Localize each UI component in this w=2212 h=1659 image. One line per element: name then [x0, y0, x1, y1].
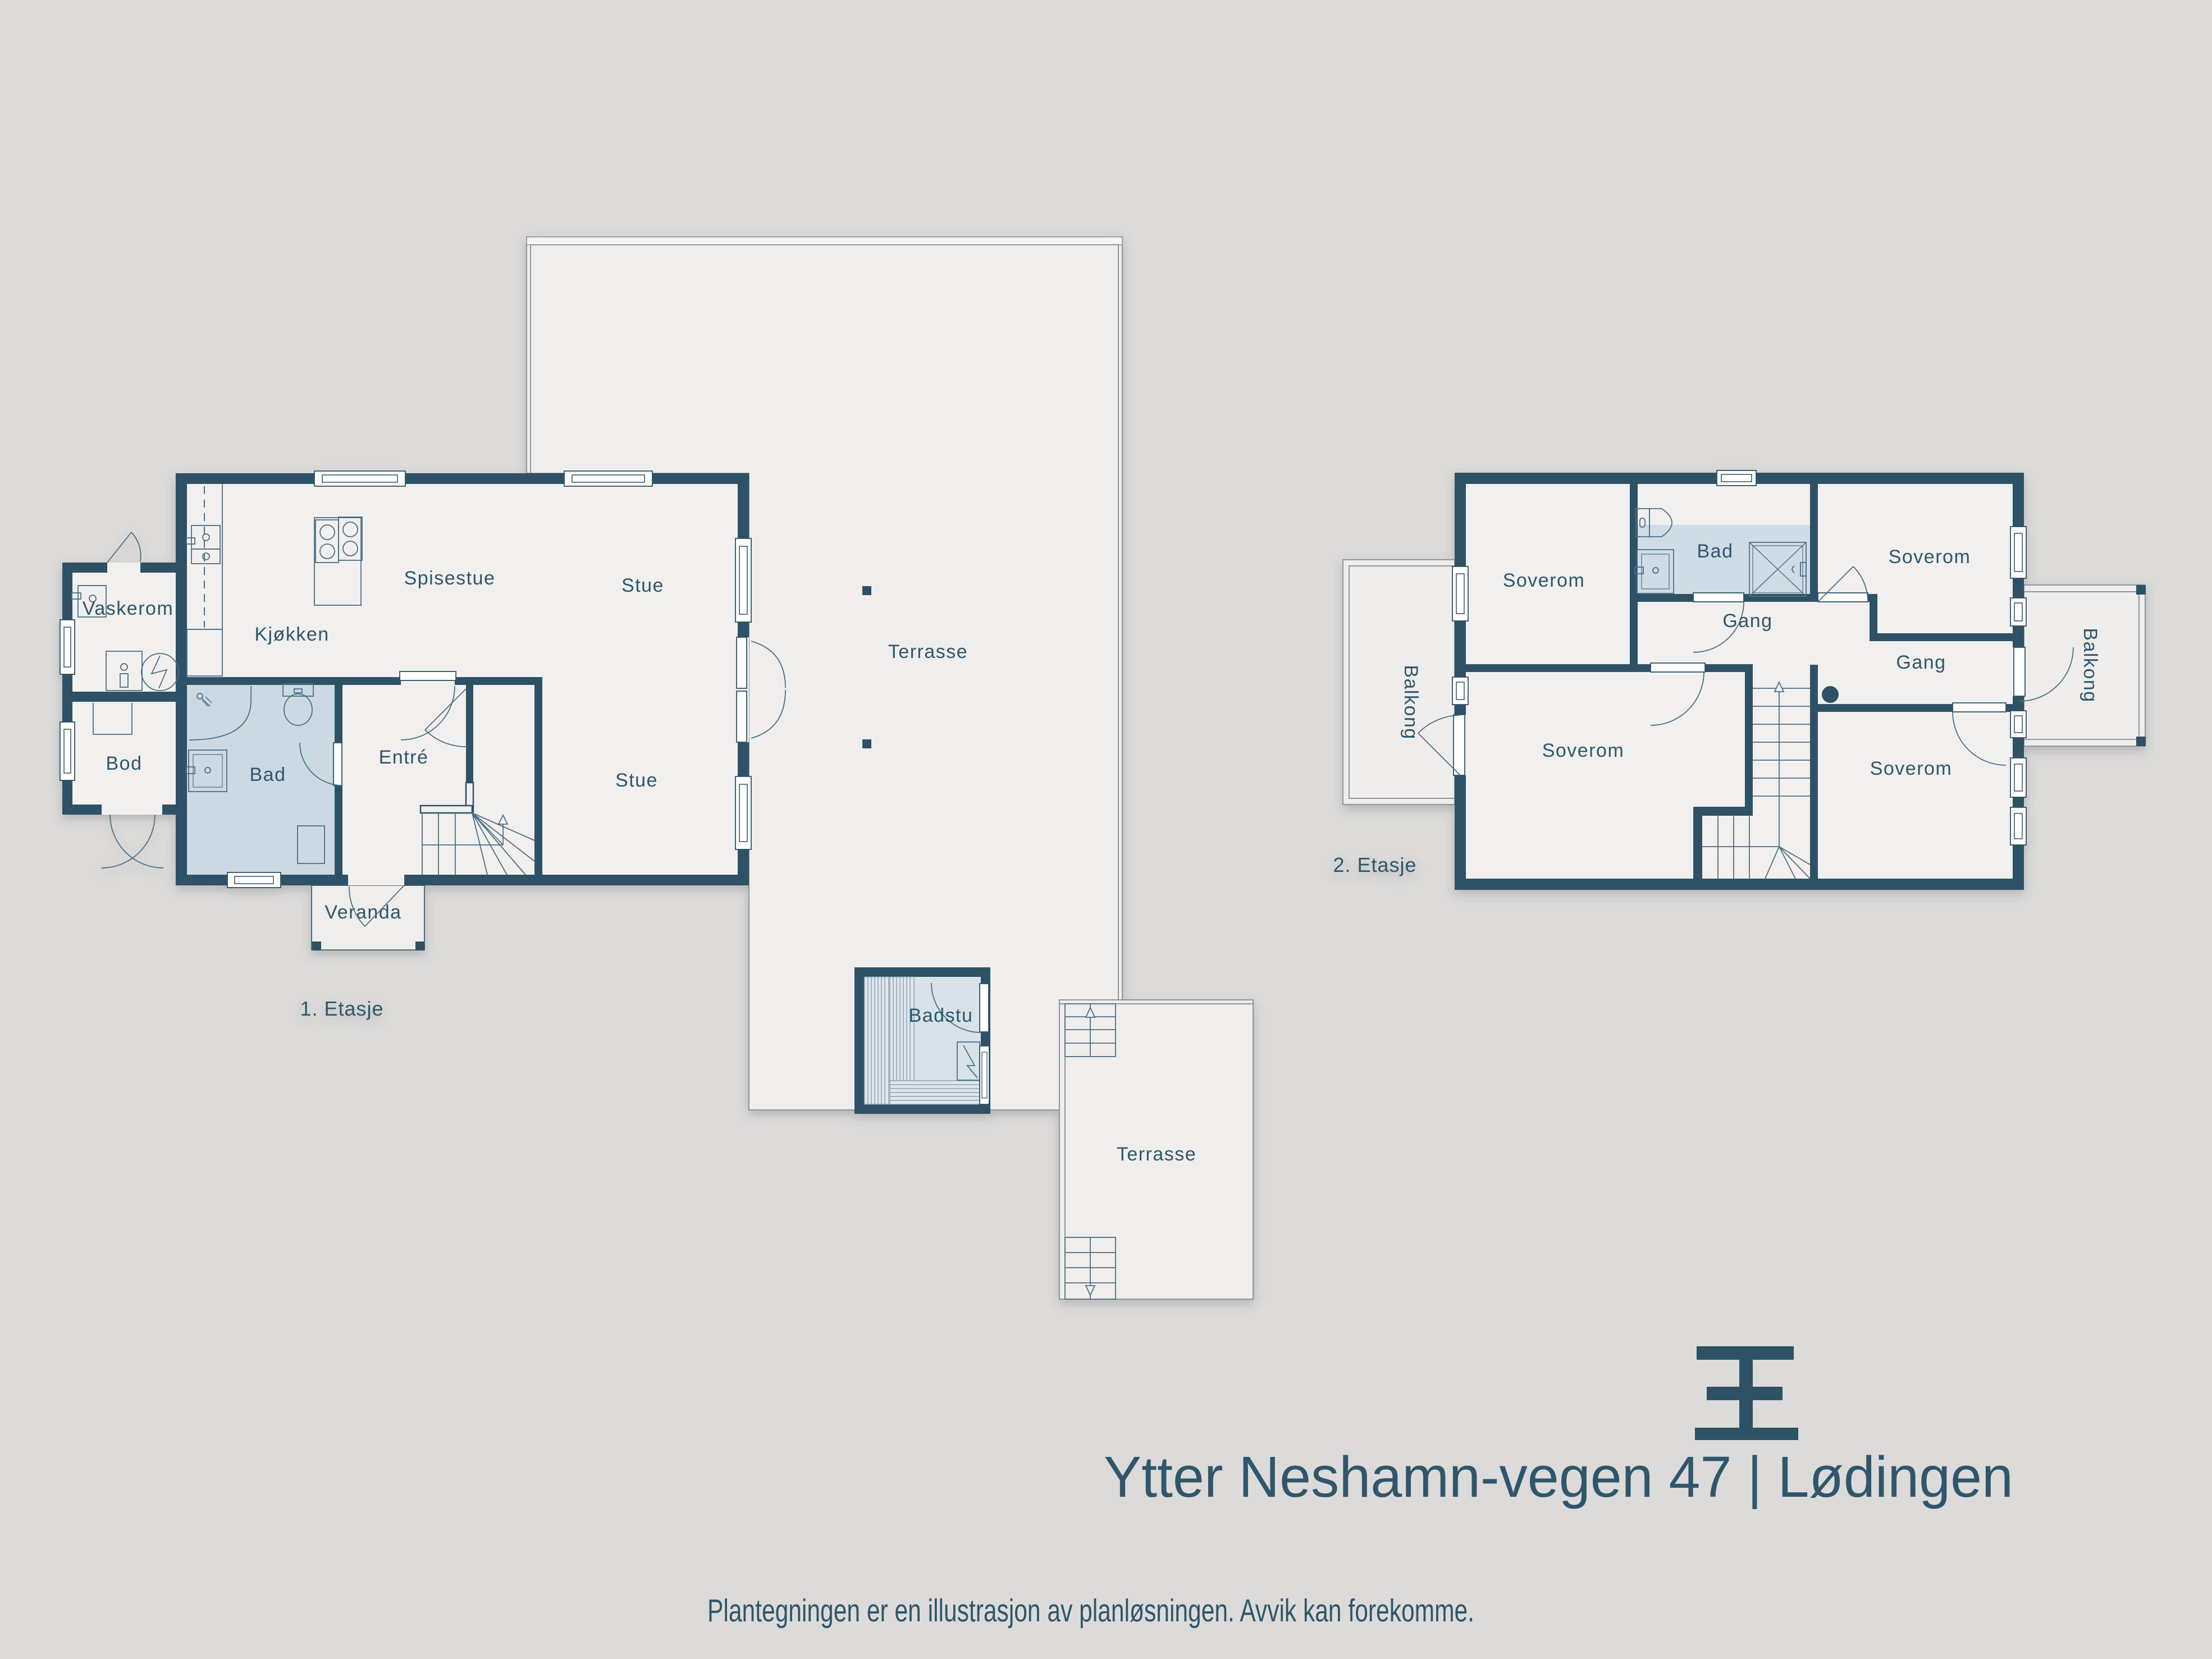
svg-text:Vaskerom: Vaskerom	[83, 598, 174, 619]
svg-text:Ytter Neshamn-vegen 47 | Lødin: Ytter Neshamn-vegen 47 | Lødingen	[1104, 1445, 2013, 1509]
svg-text:Soverom: Soverom	[1889, 546, 1971, 568]
svg-text:Kjøkken: Kjøkken	[254, 624, 329, 645]
svg-text:Bad: Bad	[250, 764, 286, 785]
svg-text:Stue: Stue	[621, 575, 664, 596]
svg-text:1. Etasje: 1. Etasje	[300, 997, 383, 1020]
svg-text:Spisestue: Spisestue	[404, 568, 496, 589]
svg-text:Gang: Gang	[1722, 610, 1772, 632]
svg-text:Entré: Entré	[379, 747, 429, 768]
svg-text:Gang: Gang	[1896, 652, 1946, 673]
svg-text:Plantegningen er en illustrasj: Plantegningen er en illustrasjon av plan…	[707, 1593, 1474, 1629]
svg-text:Stue: Stue	[615, 770, 658, 791]
svg-text:Soverom: Soverom	[1503, 570, 1585, 591]
svg-text:Badstu: Badstu	[909, 1005, 974, 1026]
svg-text:Balkong: Balkong	[1400, 665, 1422, 739]
svg-text:Terrasse: Terrasse	[888, 641, 968, 662]
svg-text:Balkong: Balkong	[2080, 628, 2101, 702]
svg-text:Veranda: Veranda	[325, 902, 401, 923]
svg-text:Soverom: Soverom	[1542, 740, 1625, 761]
svg-text:2. Etasje: 2. Etasje	[1333, 853, 1416, 876]
svg-text:Soverom: Soverom	[1870, 758, 1953, 779]
svg-text:Terrasse: Terrasse	[1117, 1144, 1196, 1165]
svg-text:Bod: Bod	[106, 753, 143, 774]
svg-text:Bad: Bad	[1697, 541, 1734, 562]
